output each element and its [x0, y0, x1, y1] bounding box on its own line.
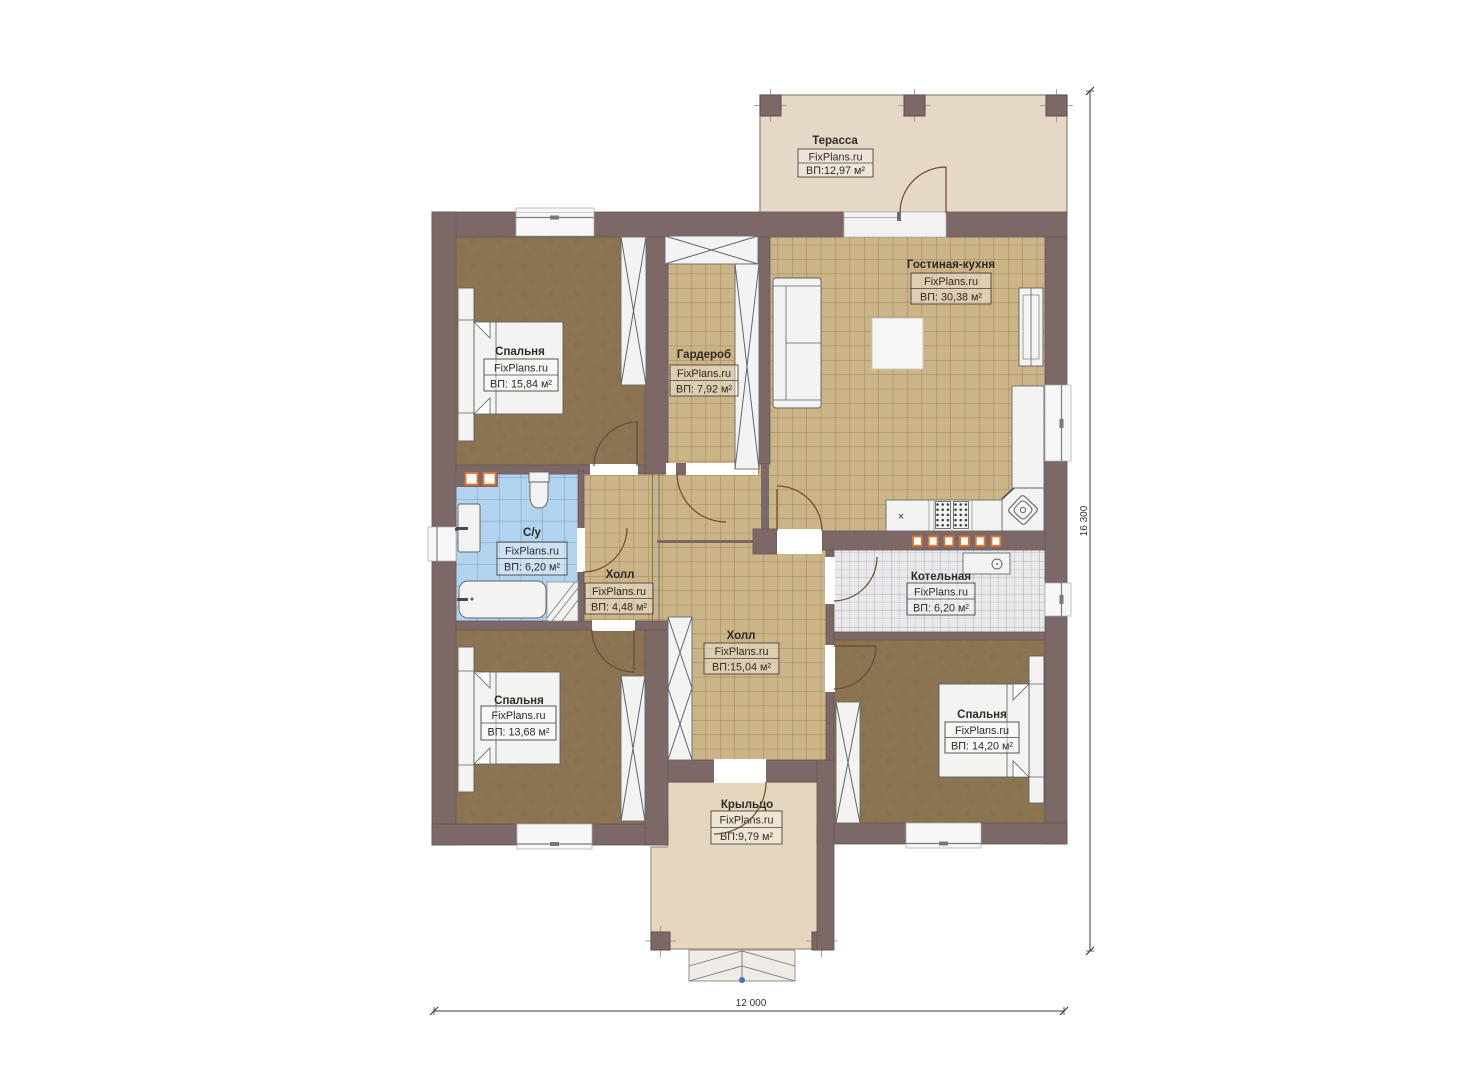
- svg-text:Крыльцо: Крыльцо: [721, 799, 773, 811]
- svg-text:С/у: С/у: [523, 527, 542, 539]
- svg-text:ВП: 13,68 м²: ВП: 13,68 м²: [488, 727, 550, 739]
- svg-text:FixPlans.ru: FixPlans.ru: [924, 276, 978, 288]
- svg-text:ВП:12,97 м²: ВП:12,97 м²: [806, 165, 865, 177]
- svg-text:Гостиная-кухня: Гостиная-кухня: [907, 259, 995, 271]
- svg-text:Терасса: Терасса: [812, 135, 858, 147]
- svg-text:ВП: 7,92 м²: ВП: 7,92 м²: [676, 384, 732, 396]
- svg-text:12 000: 12 000: [736, 998, 767, 1009]
- svg-text:ВП: 15,84 м²: ВП: 15,84 м²: [490, 379, 552, 391]
- svg-text:ВП: 6,20 м²: ВП: 6,20 м²: [504, 562, 560, 574]
- svg-text:Гардероб: Гардероб: [677, 349, 731, 361]
- svg-text:FixPlans.ru: FixPlans.ru: [592, 586, 646, 598]
- svg-text:ВП:15,04 м²: ВП:15,04 м²: [712, 662, 771, 674]
- svg-text:ВП: 4,48 м²: ВП: 4,48 м²: [591, 602, 647, 614]
- svg-text:FixPlans.ru: FixPlans.ru: [955, 725, 1009, 737]
- svg-text:FixPlans.ru: FixPlans.ru: [808, 152, 862, 164]
- svg-text:Спальня: Спальня: [495, 346, 545, 358]
- svg-text:FixPlans.ru: FixPlans.ru: [677, 368, 731, 380]
- svg-text:Спальня: Спальня: [957, 709, 1007, 721]
- svg-text:ВП: 30,38 м²: ВП: 30,38 м²: [920, 292, 982, 304]
- svg-text:ВП: 6,20 м²: ВП: 6,20 м²: [913, 603, 969, 615]
- svg-text:×: ×: [898, 511, 904, 523]
- svg-text:FixPlans.ru: FixPlans.ru: [491, 710, 545, 722]
- svg-text:Холл: Холл: [606, 569, 635, 581]
- svg-text:FixPlans.ru: FixPlans.ru: [914, 587, 968, 599]
- svg-text:16 300: 16 300: [1079, 505, 1090, 536]
- svg-text:FixPlans.ru: FixPlans.ru: [714, 646, 768, 658]
- svg-text:FixPlans.ru: FixPlans.ru: [719, 815, 773, 827]
- svg-text:Котельная: Котельная: [911, 571, 971, 583]
- svg-text:Спальня: Спальня: [494, 695, 544, 707]
- svg-text:FixPlans.ru: FixPlans.ru: [494, 363, 548, 375]
- svg-text:Холл: Холл: [727, 630, 756, 642]
- svg-text:ВП: 14,20 м²: ВП: 14,20 м²: [951, 741, 1013, 753]
- svg-text:FixPlans.ru: FixPlans.ru: [505, 546, 559, 558]
